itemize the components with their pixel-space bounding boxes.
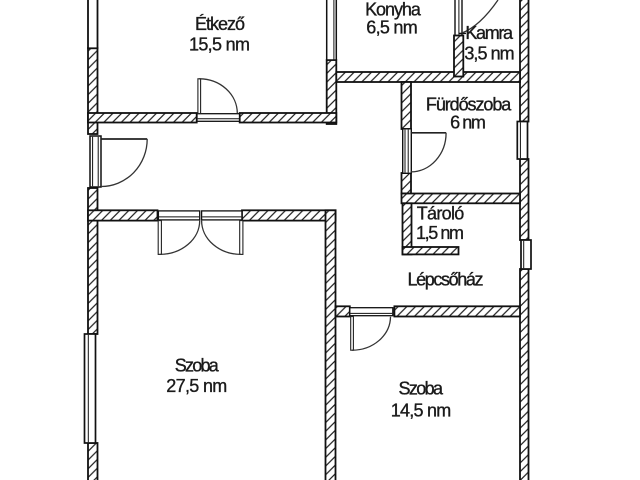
svg-text:Étkező: Étkező (195, 14, 245, 34)
svg-text:Szoba: Szoba (175, 356, 220, 376)
svg-text:6,5 nm: 6,5 nm (366, 18, 417, 38)
svg-text:Fürdőszoba: Fürdőszoba (426, 95, 512, 115)
svg-text:Tároló: Tároló (417, 204, 465, 224)
svg-text:1,5 nm: 1,5 nm (416, 223, 464, 243)
svg-text:6 nm: 6 nm (450, 113, 486, 133)
svg-text:27,5 nm: 27,5 nm (166, 376, 227, 396)
svg-text:14,5 nm: 14,5 nm (391, 401, 452, 421)
svg-text:Szoba: Szoba (399, 379, 444, 399)
svg-text:Kamra: Kamra (465, 23, 514, 43)
svg-text:Lépcsőház: Lépcsőház (408, 270, 484, 290)
svg-text:3,5 nm: 3,5 nm (464, 44, 514, 64)
svg-text:15,5 nm: 15,5 nm (189, 35, 250, 55)
